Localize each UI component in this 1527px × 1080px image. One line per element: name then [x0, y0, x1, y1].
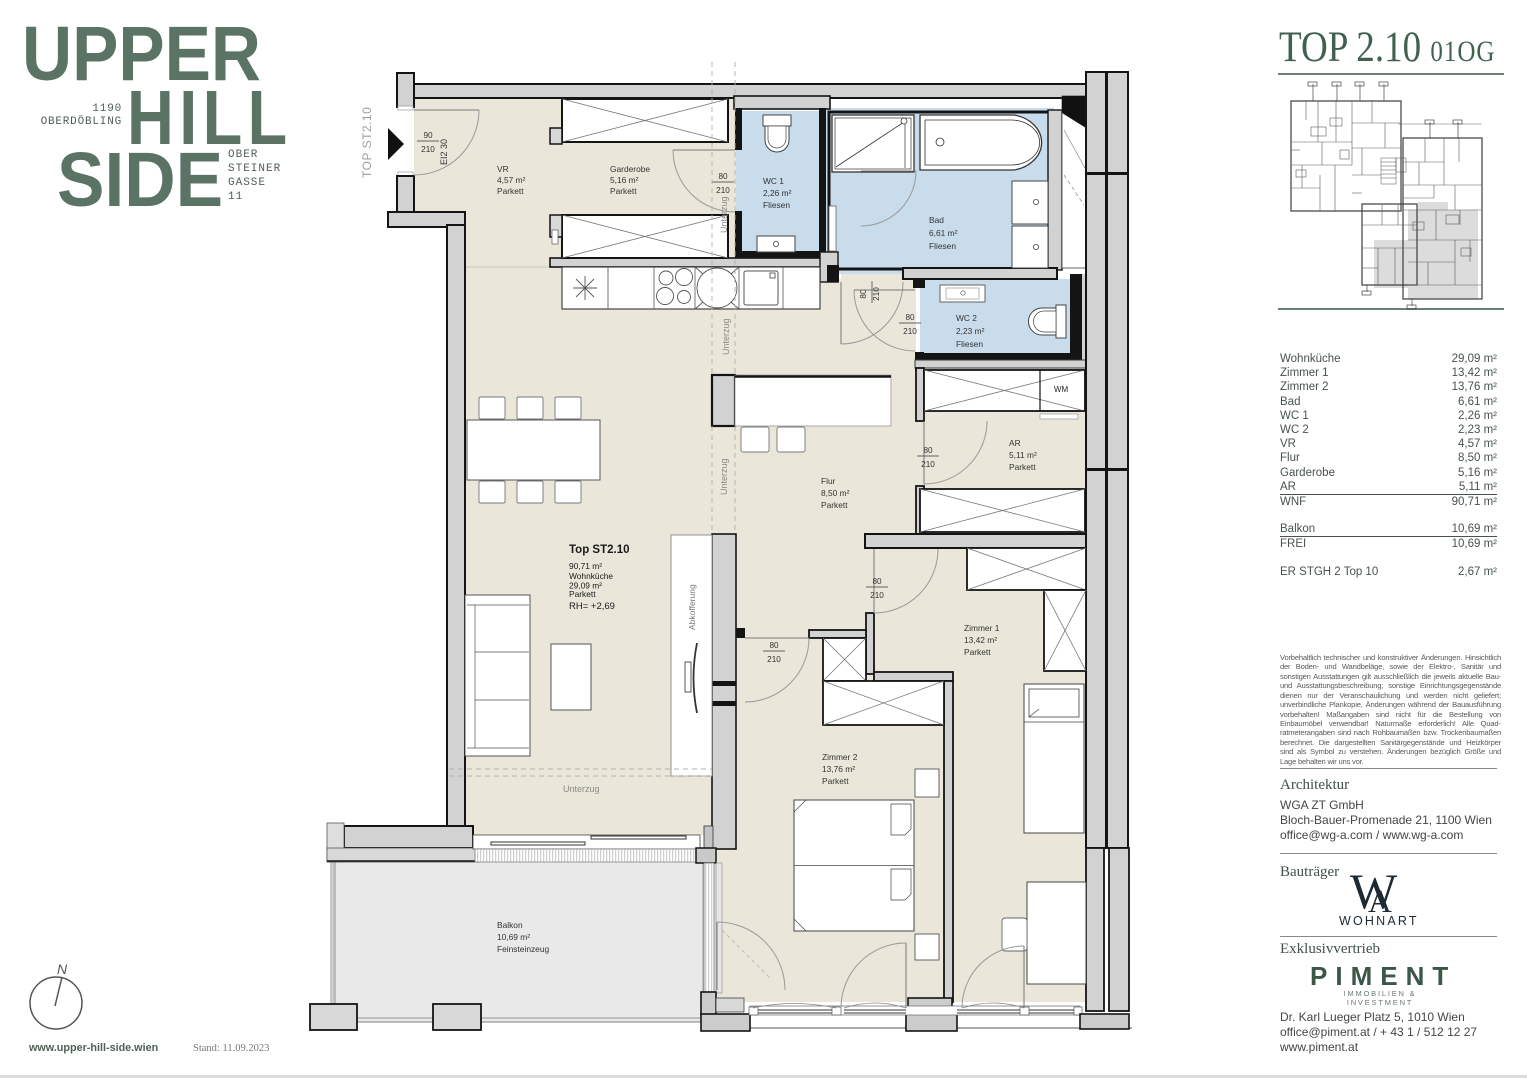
svg-text:Parkett: Parkett [569, 589, 596, 599]
svg-text:Unterzug: Unterzug [719, 458, 729, 495]
svg-text:Wohnküche: Wohnküche [569, 571, 613, 581]
svg-text:Flur: Flur [821, 476, 836, 486]
svg-text:2,23 m²: 2,23 m² [956, 326, 985, 336]
svg-text:Parkett: Parkett [610, 186, 637, 196]
svg-text:Fliesen: Fliesen [763, 200, 790, 210]
svg-text:6,61 m²: 6,61 m² [929, 228, 958, 238]
svg-text:N: N [57, 961, 68, 977]
svg-text:Parkett: Parkett [1009, 462, 1036, 472]
svg-text:80: 80 [905, 313, 915, 322]
svg-text:13,76 m²: 13,76 m² [822, 764, 855, 774]
svg-text:WM: WM [1054, 385, 1069, 394]
svg-text:Fliesen: Fliesen [929, 241, 956, 251]
svg-text:Top ST2.10: Top ST2.10 [569, 544, 630, 556]
svg-text:210: 210 [872, 287, 881, 301]
svg-text:4,57 m²: 4,57 m² [497, 175, 526, 185]
svg-text:Parkett: Parkett [821, 500, 848, 510]
svg-text:Zimmer 1: Zimmer 1 [964, 623, 1000, 633]
svg-text:13,42 m²: 13,42 m² [964, 635, 997, 645]
svg-text:Abkofferung: Abkofferung [687, 584, 697, 630]
svg-text:80: 80 [769, 641, 779, 650]
svg-text:210: 210 [716, 186, 730, 195]
svg-text:5,11 m²: 5,11 m² [1009, 450, 1037, 460]
svg-text:Parkett: Parkett [822, 776, 849, 786]
svg-text:RH= +2,69: RH= +2,69 [569, 601, 615, 612]
svg-text:Fliesen: Fliesen [956, 339, 983, 349]
svg-text:80: 80 [872, 577, 882, 586]
svg-text:210: 210 [903, 327, 917, 336]
svg-text:210: 210 [421, 145, 435, 154]
svg-text:8,50 m²: 8,50 m² [821, 488, 850, 498]
svg-text:Balkon: Balkon [497, 920, 523, 930]
svg-text:90: 90 [423, 131, 433, 140]
svg-text:10,69 m²: 10,69 m² [497, 932, 530, 942]
svg-text:Bad: Bad [929, 215, 944, 225]
svg-text:TOP ST2.10: TOP ST2.10 [360, 107, 374, 178]
svg-text:EI2 30: EI2 30 [439, 139, 449, 165]
svg-text:Unterzug: Unterzug [563, 784, 600, 794]
svg-text:210: 210 [767, 655, 781, 664]
svg-text:AR: AR [1009, 438, 1021, 448]
svg-text:210: 210 [921, 460, 935, 469]
svg-text:80: 80 [923, 446, 933, 455]
svg-text:210: 210 [870, 591, 884, 600]
svg-text:Garderobe: Garderobe [610, 164, 650, 174]
svg-text:Unterzug: Unterzug [719, 196, 729, 233]
svg-text:Zimmer 2: Zimmer 2 [822, 752, 858, 762]
svg-text:VR: VR [497, 164, 509, 174]
svg-text:5,16 m²: 5,16 m² [610, 175, 639, 185]
svg-text:Parkett: Parkett [497, 186, 524, 196]
svg-text:90,71 m²: 90,71 m² [569, 561, 602, 571]
svg-text:WC 1: WC 1 [763, 176, 784, 186]
svg-text:Parkett: Parkett [964, 647, 991, 657]
svg-text:WC 2: WC 2 [956, 313, 977, 323]
svg-text:80: 80 [718, 172, 728, 181]
svg-text:Unterzug: Unterzug [721, 318, 731, 355]
svg-text:2,26 m²: 2,26 m² [763, 188, 792, 198]
svg-text:Feinsteinzeug: Feinsteinzeug [497, 944, 549, 954]
